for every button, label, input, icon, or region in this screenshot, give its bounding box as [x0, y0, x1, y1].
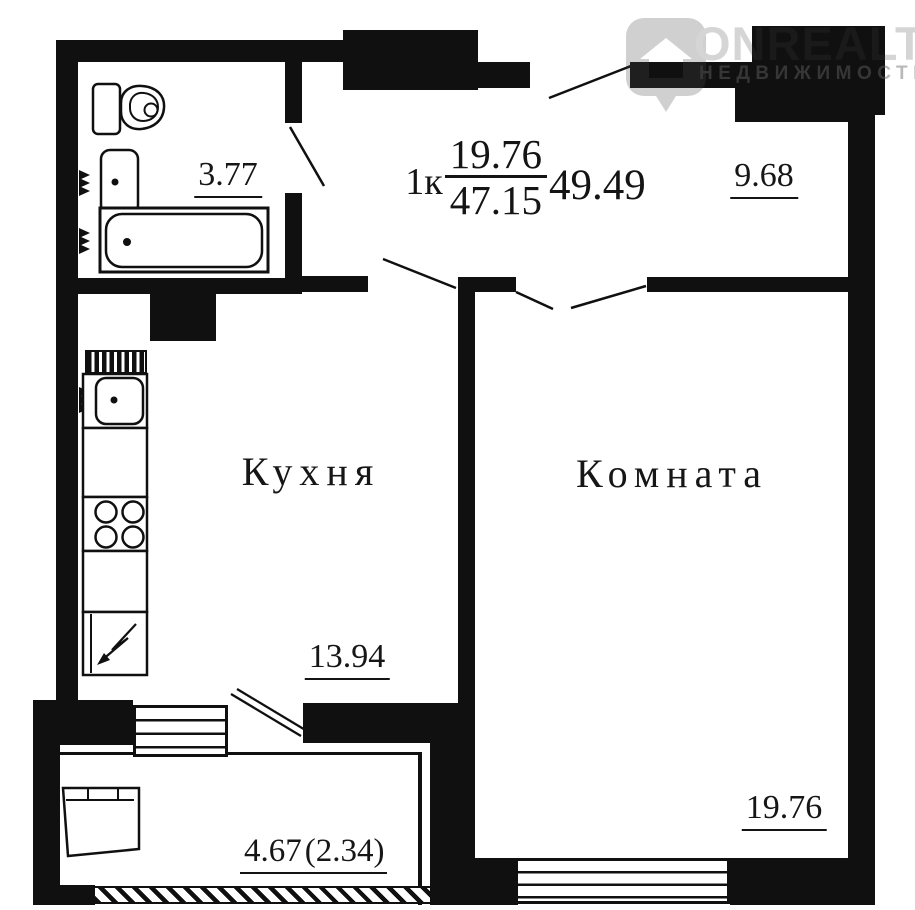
- tap-icon-bathtub: [79, 228, 90, 254]
- entrance-door-swing: [549, 66, 631, 98]
- living-room-name-label: Комната: [576, 450, 768, 497]
- bathtub-icon: [100, 208, 268, 272]
- balcony-door-swing: [231, 689, 307, 736]
- kitchen-door-swing: [383, 259, 456, 288]
- electric-panel-icon: [83, 612, 147, 675]
- living-room-area-label: 19.76: [742, 789, 827, 831]
- rooms-count: 1к: [405, 160, 442, 204]
- bathroom-area-label: 3.77: [194, 156, 262, 198]
- tap-icon-sink: [79, 170, 90, 196]
- room-doorway-mark-left: [516, 292, 553, 309]
- balcony-area-coefficient: (2.34): [304, 833, 388, 874]
- total-with-balcony-value: 49.49: [549, 161, 646, 210]
- balcony-area-label: 4.67(2.34): [240, 833, 387, 874]
- hallway-area-label: 9.68: [730, 157, 798, 199]
- kitchen-counter-1: [83, 428, 147, 497]
- kitchen-area-label: 13.94: [305, 638, 390, 680]
- balcony-area-full: 4.67: [240, 833, 304, 874]
- bath-sink-icon: [101, 150, 138, 214]
- balcony-cabinet-icon: [63, 788, 139, 856]
- kitchen-sink-icon: [83, 374, 147, 428]
- area-fraction: 19.76 47.15: [445, 134, 547, 221]
- room-doorway-mark-right: [571, 286, 646, 308]
- plan-title: 1к 19.76 47.15 49.49: [383, 130, 668, 225]
- toilet-icon: [93, 84, 164, 134]
- stove-icon: [83, 497, 147, 551]
- bathroom-door-swing: [290, 127, 324, 186]
- living-area-value: 19.76: [445, 134, 547, 178]
- kitchen-counter-2: [83, 551, 147, 612]
- kitchen-name-label: Кухня: [242, 448, 380, 495]
- total-area-value: 47.15: [450, 178, 542, 221]
- floor-plan: 1к 19.76 47.15 49.49 3.77 9.68 Кухня Ком…: [0, 0, 915, 910]
